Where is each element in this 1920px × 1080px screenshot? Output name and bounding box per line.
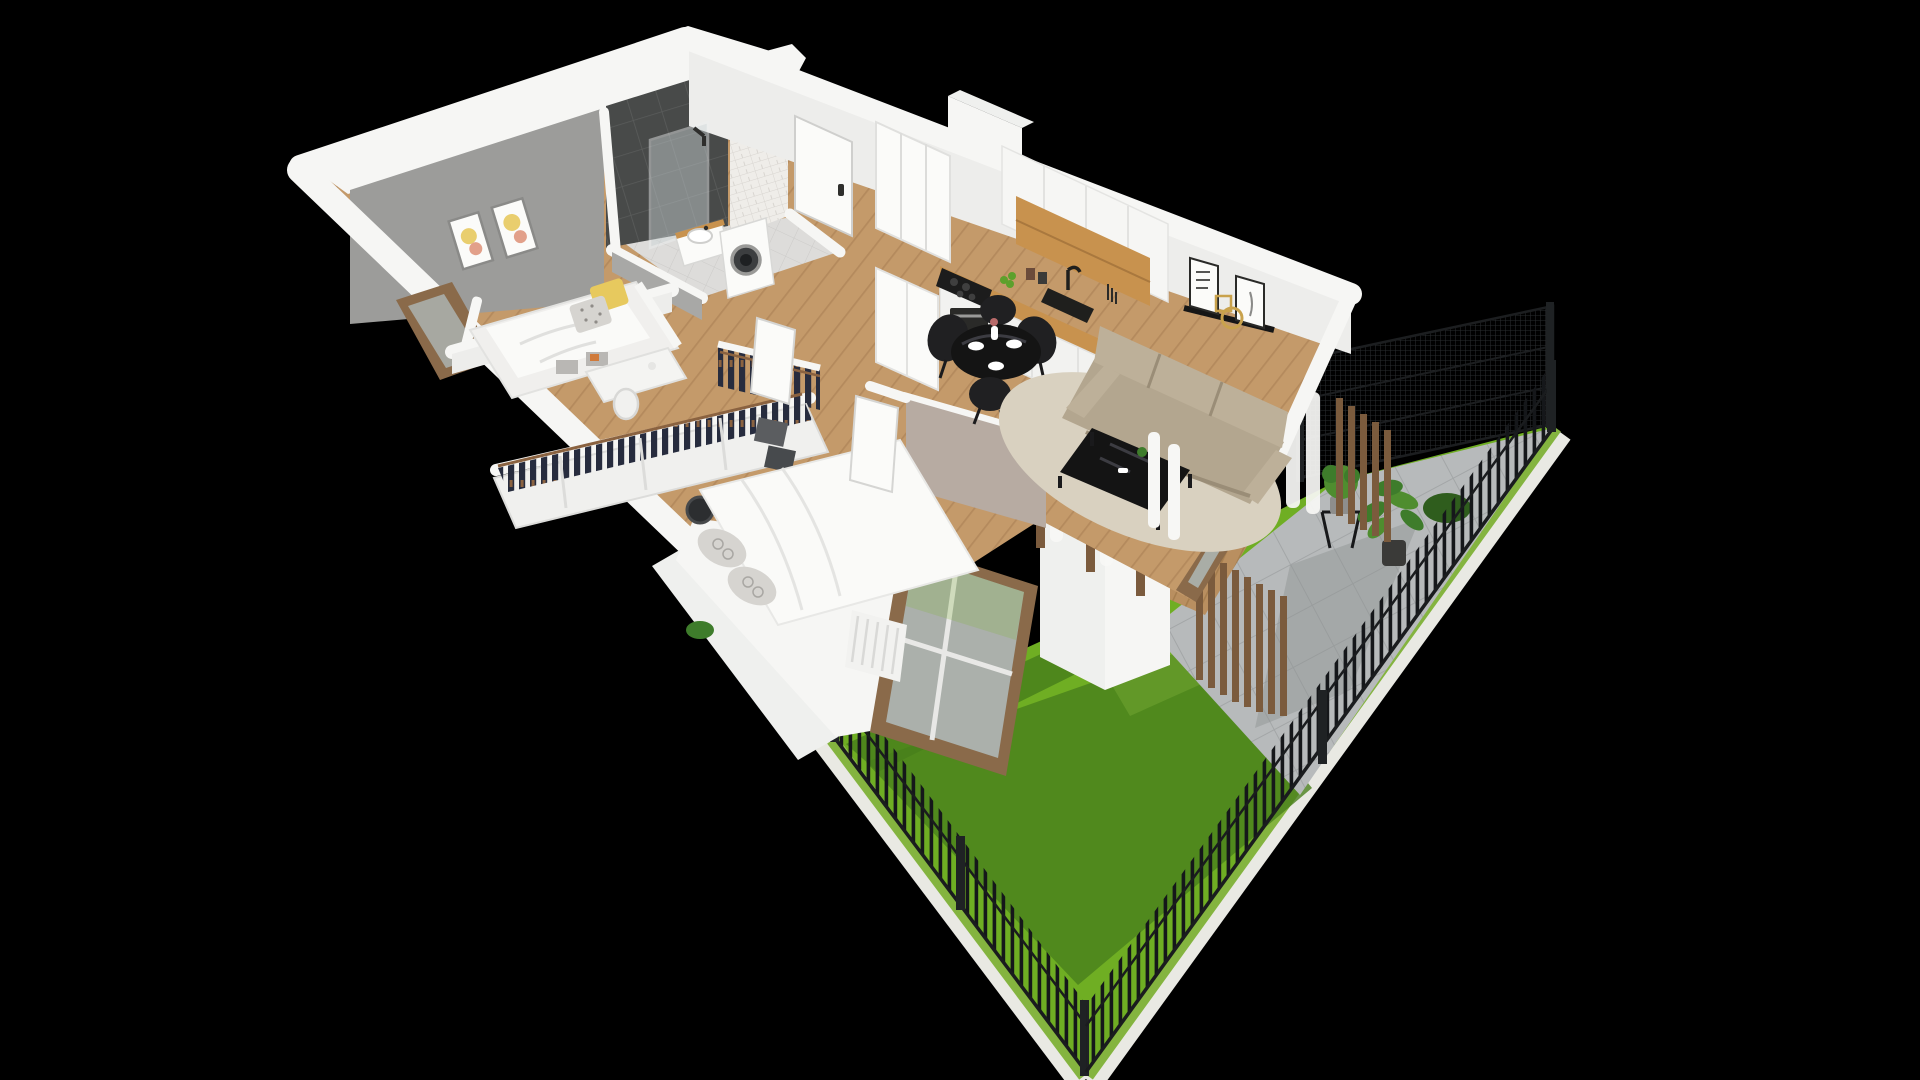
curtain <box>1168 444 1180 540</box>
typography-frame <box>1190 258 1218 314</box>
floor-plan-render <box>0 0 1920 1080</box>
flowers <box>990 318 998 326</box>
fence-post <box>956 836 965 910</box>
cubby-toy <box>590 354 599 361</box>
curtain <box>1148 432 1160 528</box>
dining-chair <box>980 295 1016 325</box>
outdoor-curtain <box>1306 392 1320 514</box>
plate <box>968 342 984 351</box>
door-handle <box>838 184 844 196</box>
table-plant <box>1137 447 1147 457</box>
plate <box>1006 340 1022 349</box>
remote <box>1118 468 1128 473</box>
washing-machine <box>720 218 774 298</box>
open-door-master <box>850 396 898 492</box>
fence-post <box>1547 360 1556 432</box>
bed-cubby <box>556 360 578 374</box>
art-frame <box>1236 276 1264 328</box>
desk-lamp <box>648 362 656 370</box>
vase <box>991 326 998 340</box>
plate <box>988 362 1004 371</box>
fence-post <box>1318 690 1327 764</box>
render-stage <box>0 0 1920 1080</box>
jar <box>1038 272 1047 284</box>
jar <box>1026 268 1035 280</box>
open-door-closet <box>751 318 795 404</box>
white-chair <box>614 389 638 419</box>
bedroom-plant <box>686 621 714 639</box>
